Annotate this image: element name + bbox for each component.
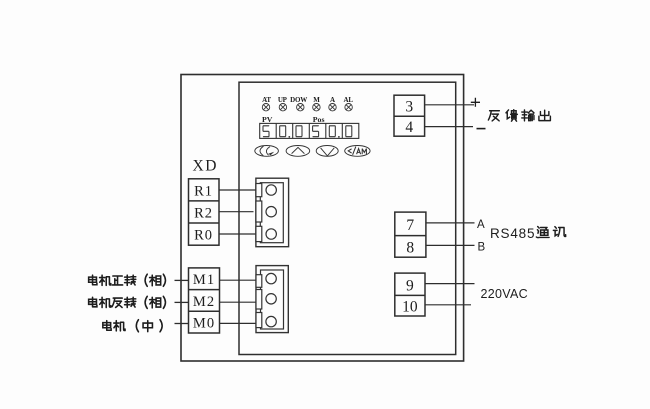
svg-text:M0: M0 — [193, 316, 215, 332]
svg-text:3: 3 — [405, 99, 413, 116]
svg-text:M: M — [313, 96, 320, 104]
svg-text:R2: R2 — [194, 206, 213, 222]
svg-text:A: A — [330, 96, 335, 104]
svg-text:XD: XD — [193, 158, 218, 175]
svg-text:Pos: Pos — [313, 115, 325, 124]
svg-text:M2: M2 — [193, 294, 215, 310]
svg-text:RS485: RS485 — [490, 226, 535, 241]
svg-text:R0: R0 — [194, 228, 213, 244]
svg-text:AL: AL — [344, 96, 354, 104]
svg-text:M1: M1 — [193, 272, 215, 288]
svg-text:DOW: DOW — [290, 96, 307, 104]
svg-text:7: 7 — [406, 217, 414, 234]
svg-text:B: B — [478, 242, 486, 254]
svg-text:8: 8 — [406, 239, 414, 256]
svg-text:R1: R1 — [194, 183, 213, 199]
svg-text:UP: UP — [278, 96, 288, 104]
svg-text:10: 10 — [402, 298, 418, 315]
svg-text:4: 4 — [405, 119, 413, 136]
svg-text:220VAC: 220VAC — [481, 287, 528, 301]
svg-text:A: A — [477, 219, 485, 231]
svg-text:9: 9 — [406, 277, 414, 294]
svg-text:AT: AT — [262, 96, 271, 104]
svg-text:PV: PV — [262, 115, 273, 124]
